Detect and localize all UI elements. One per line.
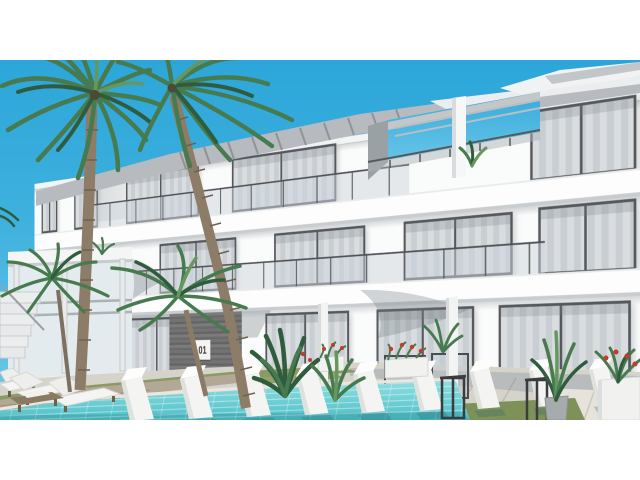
- bottom-white-margin: [0, 420, 640, 480]
- rooftop-terrace: [368, 92, 540, 180]
- frond-tip-left-edge: [0, 208, 18, 226]
- architectural-render-page: 01: [0, 0, 640, 480]
- sky: 01: [0, 60, 640, 420]
- scene-overlay: [0, 60, 640, 420]
- palm-crown: [2, 60, 160, 178]
- flower-planter-right: [596, 348, 640, 420]
- top-white-margin: [0, 0, 640, 60]
